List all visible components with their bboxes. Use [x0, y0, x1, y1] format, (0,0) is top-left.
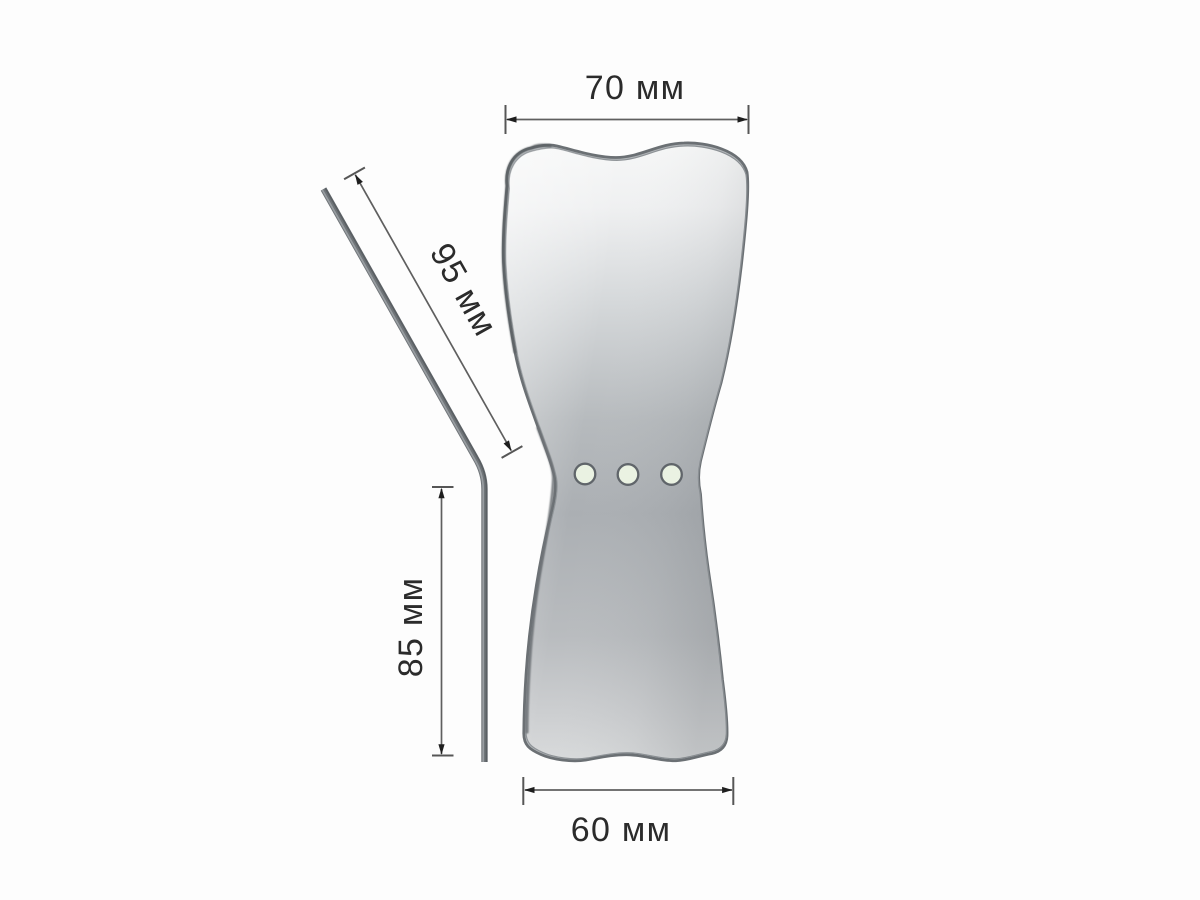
- svg-text:60 мм: 60 мм: [571, 811, 672, 849]
- svg-text:70 мм: 70 мм: [585, 69, 686, 107]
- svg-text:85 мм: 85 мм: [392, 577, 430, 678]
